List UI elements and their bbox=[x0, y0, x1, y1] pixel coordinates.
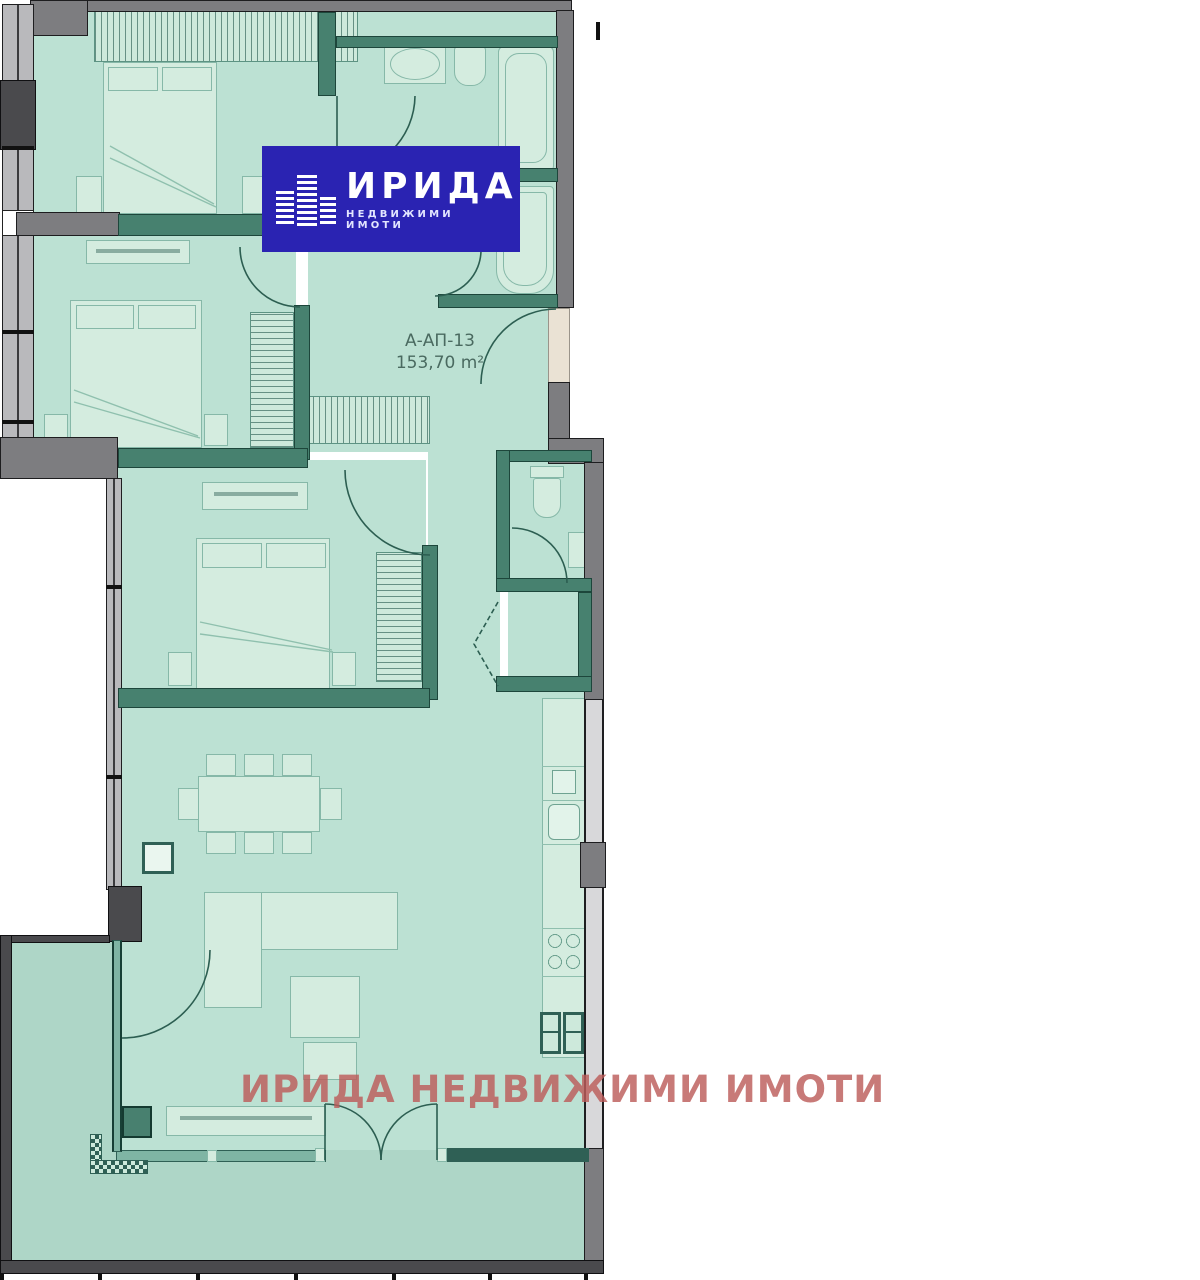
agency-logo: ИРИДА НЕДВИЖИМИ ИМОТИ bbox=[262, 146, 520, 252]
logo-title: ИРИДА bbox=[346, 168, 518, 206]
bed-fold-line bbox=[110, 146, 216, 207]
logo-text: ИРИДА НЕДВИЖИМИ ИМОТИ bbox=[346, 168, 518, 231]
buildings-icon bbox=[276, 171, 336, 227]
door-arc bbox=[345, 470, 430, 555]
door-arc bbox=[325, 1104, 381, 1160]
logo-subtitle: НЕДВИЖИМИ ИМОТИ bbox=[346, 209, 518, 231]
door-arc bbox=[435, 250, 481, 296]
apartment-code: А-АП-13 bbox=[378, 330, 502, 352]
floorplan-canvas: А-АП-13 153,70 m² ИРИДА НЕДВИЖИМИ ИМОТИ … bbox=[0, 0, 1200, 1280]
folding-door bbox=[474, 602, 498, 686]
door-arc bbox=[381, 1104, 437, 1160]
apartment-area: 153,70 m² bbox=[378, 352, 502, 374]
door-arc bbox=[512, 528, 567, 583]
door-arc bbox=[122, 950, 210, 1038]
watermark-text: ИРИДА НЕДВИЖИМИ ИМОТИ bbox=[240, 1068, 885, 1111]
apartment-label: А-АП-13 153,70 m² bbox=[378, 330, 502, 374]
bed-fold-line bbox=[74, 390, 200, 438]
bed-fold-line bbox=[200, 622, 333, 652]
door-arc bbox=[240, 247, 300, 307]
